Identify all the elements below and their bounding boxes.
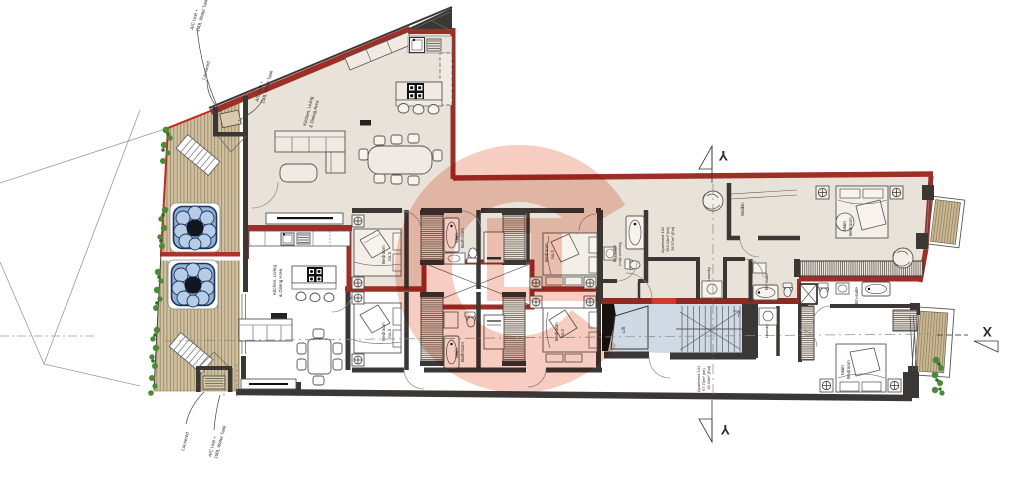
svg-text:Kitchen, Living: Kitchen, Living xyxy=(272,265,277,295)
svg-text:Bedroom: Bedroom xyxy=(848,217,853,236)
svg-text:Y: Y xyxy=(720,422,730,438)
svg-text:Bedroom: Bedroom xyxy=(381,322,386,341)
svg-text:19.43m² (Ext): 19.43m² (Ext) xyxy=(706,365,711,390)
svg-text:Bedroom: Bedroom xyxy=(381,245,386,264)
svg-text:no.3: no.3 xyxy=(387,329,392,338)
svg-text:En-suite: En-suite xyxy=(612,245,617,262)
svg-text:26.57m² (Ext): 26.57m² (Ext) xyxy=(670,226,675,251)
svg-text:Y: Y xyxy=(718,148,728,164)
svg-text:(rough plumbing): (rough plumbing) xyxy=(618,242,622,266)
svg-text:no.3: no.3 xyxy=(387,252,392,261)
svg-text:& Dining Area: & Dining Area xyxy=(278,268,283,297)
svg-text:Main: Main xyxy=(840,365,845,375)
svg-text:Laundry: Laundry xyxy=(707,267,711,281)
svg-text:En-suite: En-suite xyxy=(764,273,769,290)
svg-text:En-suite: En-suite xyxy=(854,287,859,304)
svg-text:X: X xyxy=(982,324,992,340)
svg-text:Lift: Lift xyxy=(621,326,626,333)
svg-text:Bedroom: Bedroom xyxy=(846,360,851,379)
svg-text:Laundry: Laundry xyxy=(765,324,769,338)
svg-text:Walkin: Walkin xyxy=(740,202,745,216)
svg-text:Main: Main xyxy=(842,221,847,231)
